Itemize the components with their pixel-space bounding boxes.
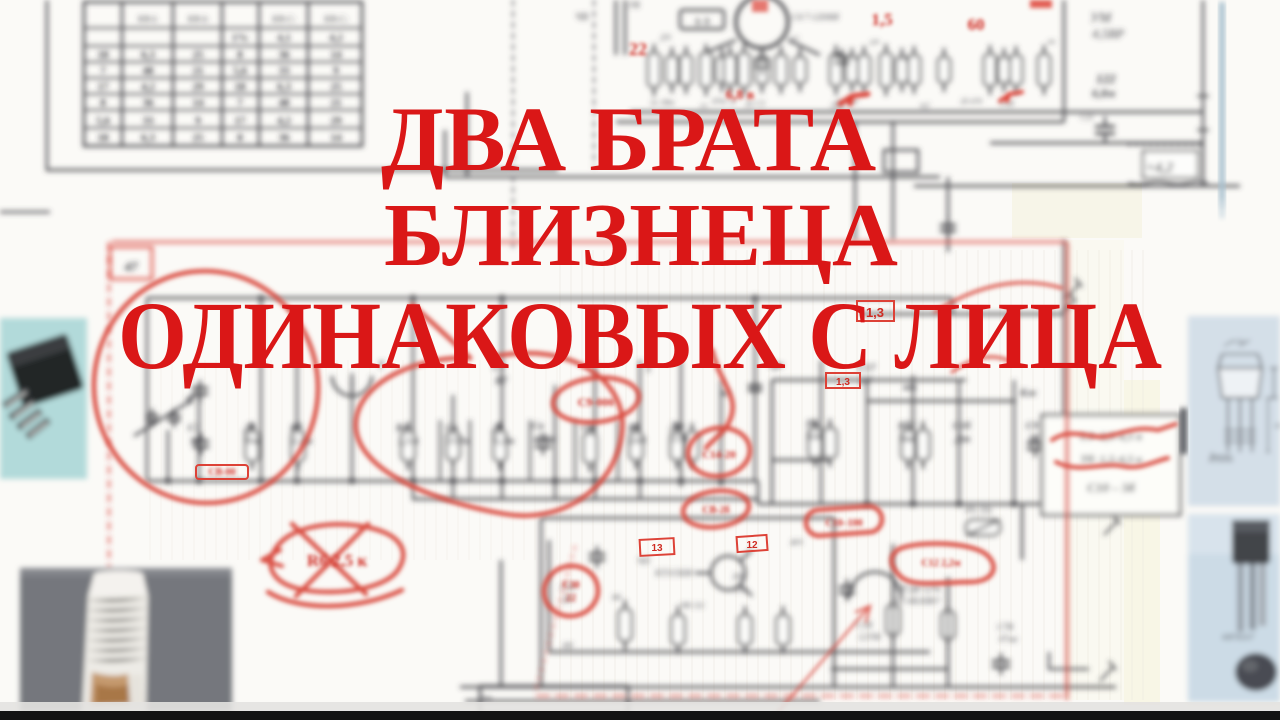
svg-text:Св: Св (446, 423, 458, 434)
svg-text:КВ-Iс: КВ-Iс (137, 14, 158, 24)
svg-text:36: 36 (279, 49, 291, 61)
svg-text:29: 29 (193, 81, 205, 93)
svg-text:21: 21 (193, 65, 204, 77)
svg-text:6,3: 6,3 (277, 81, 291, 93)
svg-text:С7В: С7В (997, 622, 1014, 632)
svg-text:R8: R8 (611, 593, 621, 602)
svg-text:+4,2: +4,2 (1146, 160, 1174, 176)
svg-text:5,6: 5,6 (233, 65, 247, 77)
svg-text:С30: С30 (562, 580, 579, 591)
svg-text:36: 36 (143, 97, 155, 109)
svg-text:29: 29 (331, 115, 343, 127)
svg-text:С4 7-120АМ: С4 7-120АМ (792, 12, 839, 22)
svg-text:R7: R7 (627, 423, 641, 434)
svg-text:12: 12 (746, 540, 758, 551)
svg-text:4,2: 4,2 (277, 115, 291, 127)
svg-text:18: 18 (235, 81, 247, 93)
svg-text:5,6: 5,6 (96, 115, 110, 127)
svg-text:ЖЧ: ЖЧ (789, 538, 803, 547)
svg-text:3,05мбм: 3,05мбм (1208, 456, 1234, 464)
svg-text:Рп: Рп (806, 419, 818, 430)
svg-text:Кж: Кж (1019, 388, 1037, 399)
svg-text:С9: С9 (1026, 421, 1039, 432)
svg-text:48: 48 (279, 97, 291, 109)
svg-text:Д1: Д1 (243, 423, 256, 434)
svg-text:8: 8 (100, 97, 106, 109)
svg-text:СВ-00: СВ-00 (208, 467, 235, 478)
svg-text:33: 33 (143, 115, 155, 127)
svg-text:7: 7 (237, 97, 243, 109)
svg-text:22: 22 (566, 593, 576, 604)
svg-text:60: 60 (968, 15, 985, 34)
svg-text:∩5л: ∩5л (1232, 339, 1245, 346)
svg-text:6,3: 6,3 (141, 49, 155, 61)
svg-text:РВ: РВ (732, 572, 744, 582)
svg-text:С1б: С1б (953, 421, 971, 432)
svg-text:14: 14 (331, 132, 343, 144)
svg-text:25: 25 (331, 81, 343, 93)
svg-text:6,8м: 6,8м (1092, 86, 1115, 100)
svg-text:50ГД8 52%: 50ГД8 52% (893, 584, 941, 595)
svg-text:9: 9 (333, 65, 339, 77)
svg-text:4,2: 4,2 (141, 81, 155, 93)
svg-text:С10–100: С10–100 (825, 518, 862, 529)
svg-text:Дв: Дв (491, 423, 504, 434)
svg-text:33: 33 (279, 65, 291, 77)
svg-text:470м: 470м (533, 434, 557, 445)
svg-text:Х7: Х7 (789, 35, 800, 44)
svg-text:С25: С25 (1080, 113, 1093, 122)
svg-text:23к: 23к (735, 584, 749, 594)
svg-text:КВ-С1: КВ-С1 (271, 14, 295, 24)
svg-text:25: 25 (193, 49, 205, 61)
svg-text:22: 22 (629, 39, 647, 59)
svg-text:R2: R2 (289, 423, 303, 434)
svg-text:8: 8 (237, 132, 243, 144)
svg-text:КВ-С2: КВ-С2 (323, 14, 347, 24)
svg-text:2б 470: 2б 470 (960, 97, 982, 106)
svg-text:4,5ВР: 4,5ВР (1092, 26, 1124, 41)
svg-text:9: 9 (195, 115, 201, 127)
svg-text:С12 2,2м: С12 2,2м (921, 558, 960, 569)
svg-text:122: 122 (1096, 71, 1116, 86)
svg-text:КТ315БМ: КТ315БМ (654, 568, 693, 578)
svg-text:С14-20: С14-20 (702, 449, 736, 461)
svg-text:тр: тр (900, 53, 910, 62)
svg-text:1-3: 1-3 (695, 16, 710, 28)
svg-text:4,2: 4,2 (329, 32, 343, 44)
svg-text:Дм: Дм (669, 421, 684, 432)
svg-text:12УМ: 12УМ (858, 632, 881, 642)
svg-text:УМ: УМ (1090, 11, 1112, 26)
svg-text:13: 13 (651, 543, 663, 554)
svg-text:СВ-2б: СВ-2б (702, 505, 729, 516)
svg-text:14: 14 (193, 97, 205, 109)
svg-text:1%: 1% (232, 32, 249, 44)
svg-text:С1В: С1В (856, 620, 873, 630)
svg-text:R4: R4 (395, 423, 408, 434)
svg-text:25: 25 (193, 132, 205, 144)
svg-text:4,1: 4,1 (277, 32, 291, 44)
svg-text:3т: 3т (899, 434, 913, 445)
svg-text:18: 18 (98, 132, 110, 144)
svg-text:47: 47 (124, 259, 139, 274)
svg-text:R12: R12 (897, 421, 916, 432)
svg-text:1В: 1В (190, 436, 202, 447)
svg-text:КВ-Iд: КВ-Iд (187, 14, 209, 24)
svg-text:4% 10х: 4% 10х (965, 505, 992, 515)
svg-text:т2: т2 (920, 101, 930, 110)
svg-text:30: 30 (1274, 423, 1280, 430)
svg-text:07ме: 07ме (999, 634, 1018, 644)
svg-text:48: 48 (143, 65, 155, 77)
svg-text:21: 21 (331, 97, 342, 109)
svg-text:ДЧ: ДЧ (659, 33, 671, 42)
svg-text:14: 14 (331, 49, 343, 61)
svg-text:çт: çт (870, 37, 880, 46)
svg-text:17: 17 (235, 115, 247, 127)
svg-text:КВТ8107: КВТ8107 (1222, 633, 1255, 642)
svg-text:R6 2,5 к: R6 2,5 к (307, 551, 368, 570)
svg-text:Св: Св (532, 421, 544, 432)
svg-text:С3: С3 (188, 423, 200, 434)
svg-text:6,3: 6,3 (141, 132, 155, 144)
svg-text:100: 100 (808, 432, 825, 443)
svg-text:36: 36 (279, 132, 291, 144)
svg-text:150м: 150м (448, 436, 471, 447)
svg-text:1,5м: 1,5м (398, 436, 418, 447)
svg-text:ЧП: ЧП (637, 556, 650, 566)
svg-text:С9: С9 (582, 423, 595, 434)
svg-text:ЧJ 4В.КВ0?: ЧJ 4В.КВ0? (895, 596, 941, 606)
svg-text:5,1м: 5,1м (494, 436, 514, 447)
svg-text:17: 17 (98, 81, 110, 93)
svg-text:ЧВ: ЧВ (575, 12, 588, 23)
svg-text:8: 8 (237, 49, 243, 61)
svg-text:вч: вч (1048, 37, 1055, 46)
svg-text:Дт: Дт (954, 434, 970, 445)
svg-text:С10 – 5б: С10 – 5б (1087, 480, 1135, 495)
svg-text:7: 7 (100, 65, 106, 77)
svg-text:ЧВ 132: ЧВ 132 (680, 601, 704, 610)
svg-text:С9-000: С9-000 (578, 395, 615, 409)
svg-text:1,5: 1,5 (871, 10, 892, 29)
svg-text:4М: 4М (562, 641, 574, 650)
svg-text:9м: 9м (246, 436, 258, 447)
svg-text:дин: дин (480, 693, 492, 702)
svg-text:18: 18 (98, 49, 110, 61)
svg-text:240: 240 (629, 436, 647, 447)
svg-text:УВ: УВ (628, 0, 640, 10)
svg-text:13м: 13м (672, 434, 690, 445)
